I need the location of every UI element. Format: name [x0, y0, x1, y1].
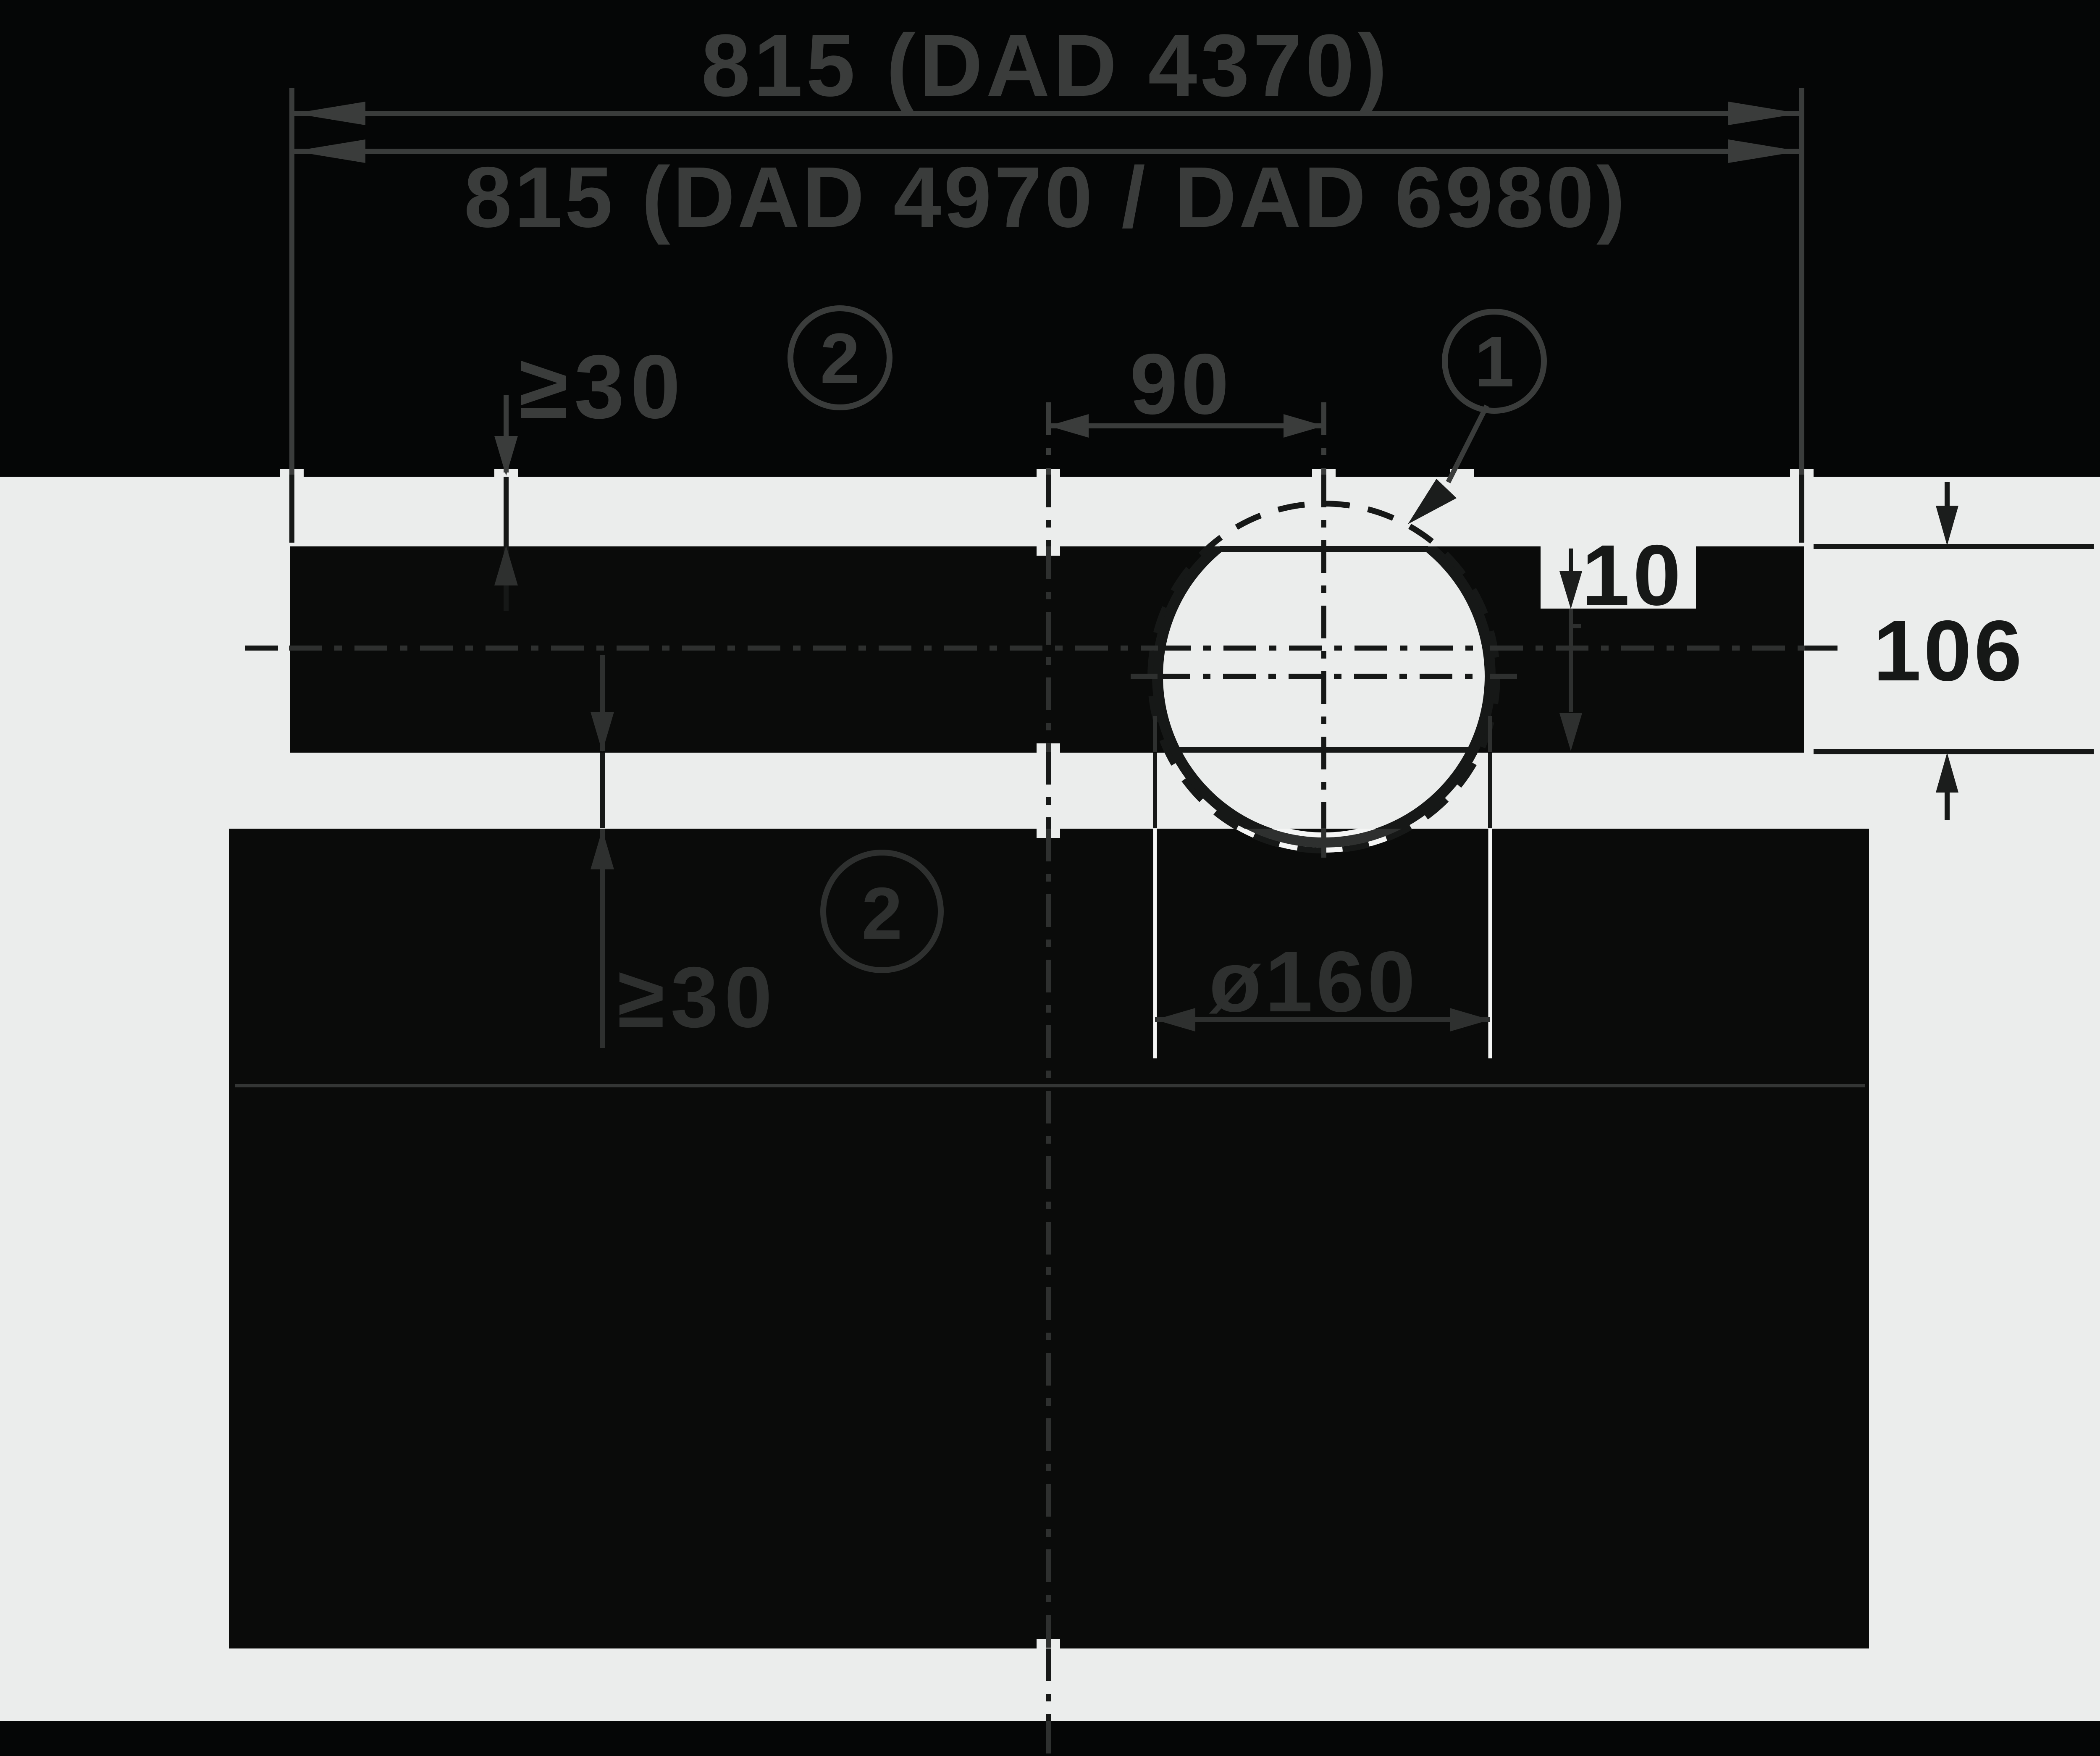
dim-815-dad4370-label: 815 (DAD 4370) — [701, 16, 1390, 115]
clearance-top-note: 2 — [820, 319, 860, 399]
diagram-canvas: 815 (DAD 4370) 815 (DAD 4970 / DAD 6980)… — [0, 0, 2100, 1756]
dim-815-dad4970-6980-label: 815 (DAD 4970 / DAD 6980) — [464, 149, 1628, 245]
callout-1-label: 1 — [1475, 322, 1515, 402]
dim-10-label: 10 — [1582, 527, 1684, 623]
tick — [1570, 624, 1581, 628]
dim-dia-label: ø160 — [1209, 934, 1418, 1030]
clearance-below-note: 2 — [861, 873, 902, 955]
dim-90-label: 90 — [1130, 336, 1232, 432]
clearance-top-label: ≥30 — [519, 336, 686, 437]
clearance-below-label: ≥30 — [617, 949, 778, 1045]
dim-106-label: 106 — [1873, 603, 2024, 699]
